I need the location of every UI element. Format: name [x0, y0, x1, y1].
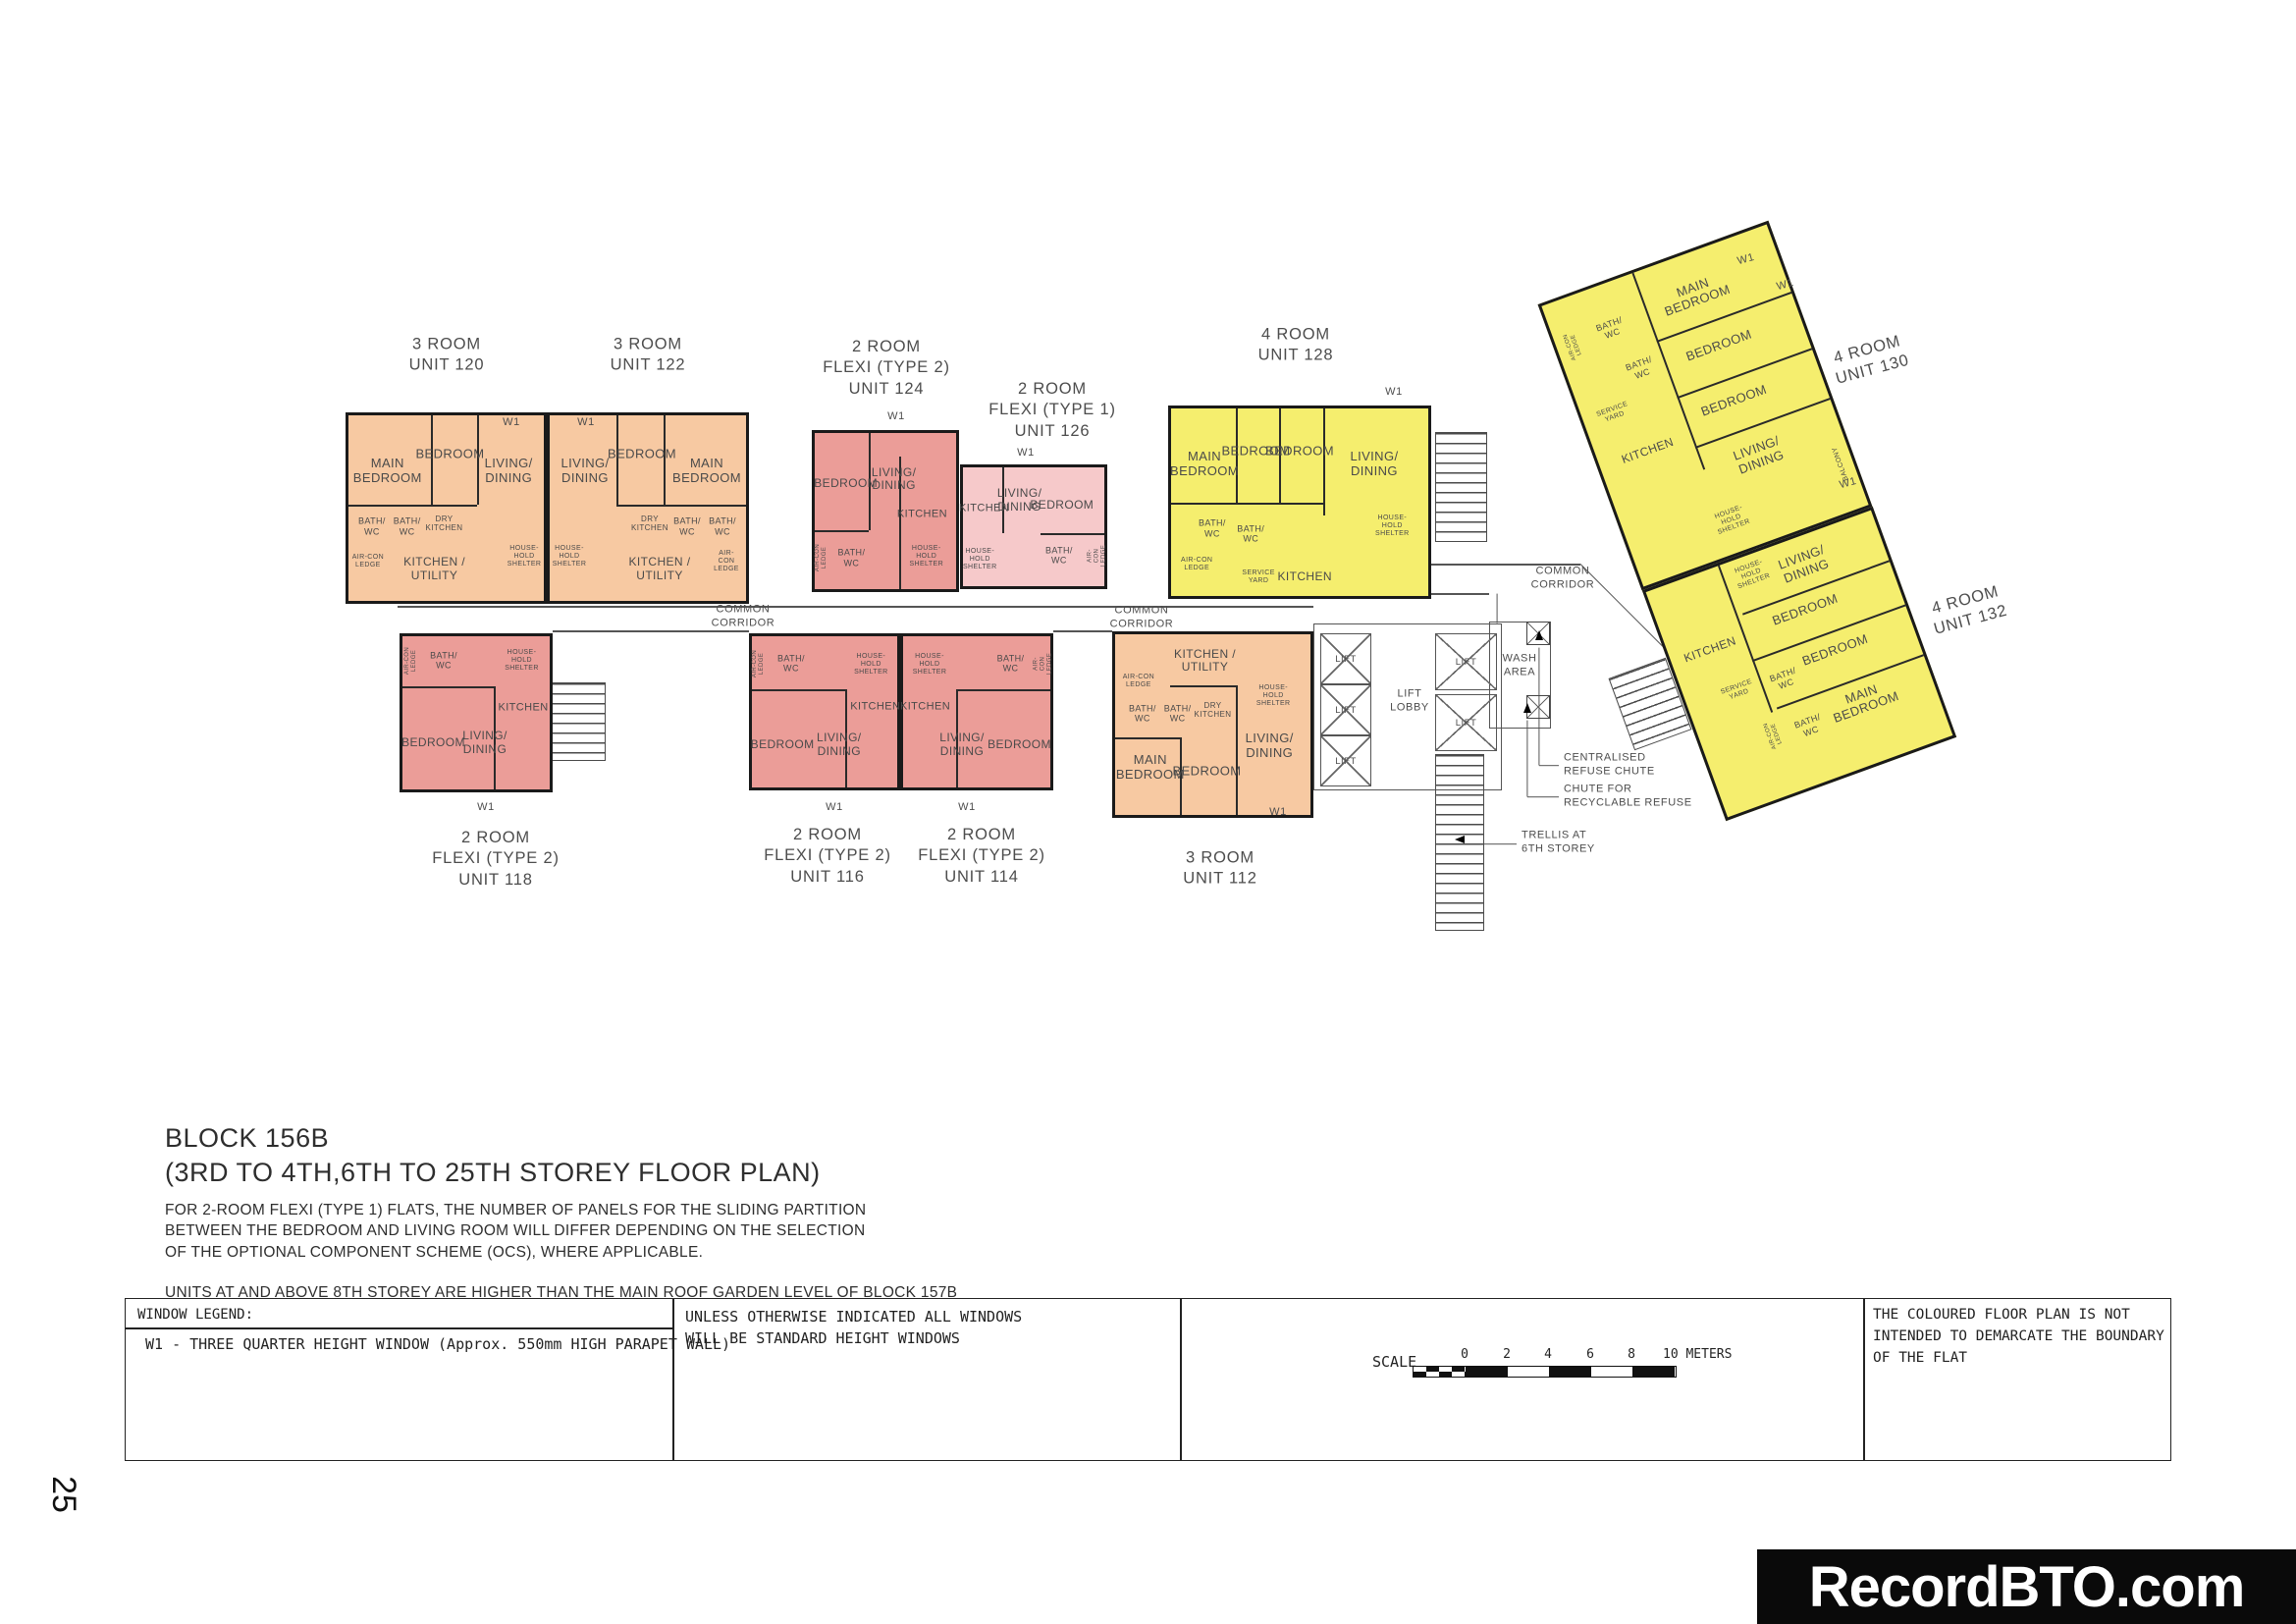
room-label: KITCHEN / UTILITY [629, 556, 691, 583]
lift-shaft: LIFT [1320, 633, 1371, 684]
room-label: AIR-CON LEDGE [1763, 719, 1786, 749]
room-label: BATH/ WC [1237, 524, 1264, 545]
unit-120-block: MAIN BEDROOMBEDROOMLIVING/ DININGBATH/ W… [346, 412, 547, 604]
room-label: HOUSE- HOLD SHELTER [913, 653, 947, 677]
unit-116-block: AIR-CON LEDGEBATH/ WCHOUSE- HOLD SHELTER… [749, 633, 900, 790]
room-label: BEDROOM [814, 478, 878, 492]
legend-table-divider [672, 1298, 674, 1461]
room-label: KITCHEN [850, 701, 900, 714]
scale-tick: 10 METERS [1663, 1347, 1732, 1362]
lift-lobby-label: LIFT LOBBY [1390, 687, 1429, 715]
room-label: BATH/ WC [997, 653, 1025, 674]
scale-tick: 2 [1503, 1347, 1511, 1362]
trellis-label: TRELLIS AT 6TH STOREY [1522, 829, 1595, 856]
unit-128-block: MAIN BEDROOMBEDROOMBEDROOMLIVING/ DINING… [1168, 406, 1431, 599]
wash-area-label: WASH AREA [1503, 652, 1537, 679]
unit-126-title: 2 ROOM FLEXI (TYPE 1) UNIT 126 [988, 379, 1115, 442]
room-label: AIR-CON LEDGE [1181, 556, 1212, 571]
room-label: LIVING/ DINING [939, 731, 984, 759]
unit-114-title: 2 ROOM FLEXI (TYPE 2) UNIT 114 [918, 825, 1044, 888]
scale-tick: 6 [1586, 1347, 1594, 1362]
room-label: LIVING/ DINING [462, 730, 507, 757]
w1-label: W1 [1017, 447, 1035, 460]
room-label: HOUSE- HOLD SHELTER [1256, 683, 1291, 707]
room-label: BATH/ WC [1045, 545, 1073, 566]
internal-wall [402, 686, 494, 688]
leader-arrow-left [1455, 836, 1465, 843]
room-label: KITCHEN [897, 508, 947, 520]
room-label: KITCHEN [1620, 436, 1676, 467]
room-label: AIR-CON LEDGE [1033, 653, 1053, 675]
internal-wall [1170, 685, 1237, 687]
unit-118-block: AIR-CON LEDGEBATH/ WCHOUSE- HOLD SHELTER… [400, 633, 553, 792]
scale-bar-checker [1414, 1367, 1466, 1377]
legend-table-divider [1863, 1298, 1865, 1461]
w1-label: W1 [477, 801, 495, 815]
unit-118-title: 2 ROOM FLEXI (TYPE 2) UNIT 118 [432, 828, 559, 891]
unit-120-title: 3 ROOM UNIT 120 [409, 335, 485, 377]
room-label: SERVICE YARD [1242, 569, 1274, 585]
unit-112-title: 3 ROOM UNIT 112 [1183, 848, 1257, 891]
room-label: KITCHEN / UTILITY [403, 556, 465, 583]
room-label: LIVING/ DINING [561, 457, 609, 486]
room-label: AIR-CON LEDGE [352, 554, 384, 569]
lift-label: LIFT [1335, 654, 1357, 665]
room-label: BEDROOM [751, 738, 815, 752]
room-label: HOUSE- HOLD SHELTER [909, 545, 943, 568]
room-label: BATH/ WC [777, 653, 805, 674]
lift-label: LIFT [1456, 718, 1477, 729]
room-label: HOUSE- HOLD SHELTER [505, 649, 539, 673]
internal-wall [616, 505, 746, 507]
internal-wall [1041, 533, 1104, 535]
room-label: BEDROOM [1265, 444, 1334, 459]
centralised-refuse-chute-label: CENTRALISED REFUSE CHUTE [1564, 751, 1655, 779]
unit-132-title: 4 ROOM UNIT 132 [1926, 580, 2009, 640]
room-label: KITCHEN / UTILITY [1174, 648, 1236, 676]
room-label: MAIN BEDROOM [1658, 269, 1733, 320]
room-label: LIVING/ DINING [817, 731, 861, 759]
scale-bar [1413, 1366, 1677, 1378]
room-label: BEDROOM [1030, 499, 1094, 513]
common-corridor-label: COMMON CORRIDOR [1531, 565, 1595, 592]
room-label: DRY KITCHEN [631, 514, 668, 531]
room-label: MAIN BEDROOM [353, 457, 422, 486]
storey-subtitle: (3RD TO 4TH,6TH TO 25TH STOREY FLOOR PLA… [165, 1158, 957, 1188]
room-label: AIR-CON LEDGE [714, 550, 739, 573]
lift-label: LIFT [1335, 705, 1357, 716]
room-label: AIR-CON LEDGE [404, 647, 418, 675]
corridor-line [1527, 796, 1559, 797]
room-label: BEDROOM [1173, 764, 1242, 779]
corridor-line [1539, 765, 1559, 766]
w1-label: W1 [1269, 806, 1287, 820]
internal-wall [752, 689, 845, 691]
corridor-line [1526, 721, 1527, 797]
lift-shaft: LIFT [1435, 694, 1497, 751]
recyclable-refuse-chute-label: CHUTE FOR RECYCLABLE REFUSE [1564, 783, 1692, 810]
room-label: HOUSE- HOLD SHELTER [553, 545, 587, 568]
room-label: BATH/ WC [1199, 518, 1226, 539]
room-label: HOUSE- HOLD SHELTER [854, 653, 888, 677]
w1-label: W1 [958, 801, 976, 815]
room-label: HOUSE- HOLD SHELTER [963, 548, 997, 571]
block-title: BLOCK 156B [165, 1123, 957, 1154]
room-label: DRY KITCHEN [1195, 701, 1232, 719]
w1-legend-entry: W1 - THREE QUARTER HEIGHT WINDOW (Approx… [145, 1335, 730, 1353]
room-label: BEDROOM [1699, 383, 1769, 420]
staircase [1435, 432, 1487, 542]
unit-122-title: 3 ROOM UNIT 122 [611, 335, 686, 377]
legend-table-divider [125, 1327, 672, 1329]
leader-arrow-up [1535, 630, 1543, 640]
room-label: DRY KITCHEN [426, 514, 463, 531]
watermark-text: RecordBTO.com [1809, 1554, 2245, 1620]
room-label: SERVICE YARD [1720, 678, 1756, 705]
room-label: LIVING/ DINING [485, 457, 533, 486]
staircase [552, 682, 606, 761]
room-label: BEDROOM [1684, 328, 1754, 365]
room-label: AIR-CON LEDGE [1563, 330, 1585, 360]
scale-tick: 4 [1544, 1347, 1552, 1362]
room-label: AIR-CON LEDGE [1123, 674, 1154, 689]
window-legend-title: WINDOW LEGEND: [137, 1307, 253, 1323]
room-label: KITCHEN [498, 702, 548, 715]
room-label: HOUSE- HOLD SHELTER [1711, 503, 1751, 537]
room-label: HOUSE- HOLD SHELTER [1375, 514, 1410, 538]
room-label: BATH/ WC [1768, 665, 1800, 693]
corridor-line [1496, 594, 1497, 623]
room-label: BEDROOM [988, 738, 1051, 752]
room-label: BATH/ WC [1594, 314, 1627, 343]
room-label: MAIN BEDROOM [1827, 676, 1901, 727]
room-label: BATH/ WC [673, 516, 701, 537]
lift-shaft: LIFT [1320, 684, 1371, 735]
unit-124-title: 2 ROOM FLEXI (TYPE 2) UNIT 124 [823, 337, 949, 400]
unit-126-block: KITCHENLIVING/ DININGBEDROOMHOUSE- HOLD … [960, 464, 1107, 589]
unit-128-title: 4 ROOM UNIT 128 [1258, 325, 1334, 367]
room-label: BATH/ WC [430, 651, 457, 672]
internal-wall [1236, 685, 1238, 815]
room-label: BEDROOM [608, 447, 676, 461]
common-corridor-label: COMMON CORRIDOR [712, 603, 775, 630]
room-label: BATH/ WC [394, 516, 421, 537]
room-label: KITCHEN [1682, 634, 1738, 666]
unit-112-block: KITCHEN / UTILITYAIR-CON LEDGEBATH/ WCBA… [1112, 631, 1313, 818]
scale-tick: 0 [1461, 1347, 1468, 1362]
room-label: AIR-CON LEDGE [815, 544, 828, 571]
unit-114-block: HOUSE- HOLD SHELTERBATH/ WCAIR-CON LEDGE… [900, 633, 1053, 790]
unit-122-block: LIVING/ DININGBEDROOMMAIN BEDROOMDRY KIT… [547, 412, 749, 604]
legend-table-divider [1180, 1298, 1182, 1461]
lift-shaft: LIFT [1320, 735, 1371, 786]
room-label: SERVICE YARD [1595, 401, 1631, 427]
room-label: BATH/ WC [1129, 704, 1156, 725]
unit-116-title: 2 ROOM FLEXI (TYPE 2) UNIT 116 [764, 825, 890, 888]
windows-note: UNLESS OTHERWISE INDICATED ALL WINDOWS W… [685, 1307, 1022, 1350]
internal-wall [1171, 503, 1323, 505]
room-label: HOUSE- HOLD SHELTER [1732, 557, 1772, 591]
corridor-line [553, 630, 749, 631]
room-label: BATH/ WC [838, 548, 866, 568]
room-label: BEDROOM [1771, 592, 1841, 629]
internal-wall [348, 505, 477, 507]
internal-wall [1115, 737, 1180, 739]
w1-label: W1 [826, 801, 843, 815]
w1-label: W1 [887, 410, 905, 424]
scale-tick: 8 [1628, 1347, 1635, 1362]
leader-arrow-up [1523, 703, 1531, 713]
room-label: AIR-CON LEDGE [753, 650, 767, 677]
w1-label: W1 [1385, 386, 1403, 400]
room-label: LIVING/ DINING [872, 466, 916, 494]
w1-label: W1 [503, 416, 520, 430]
room-label: BEDROOM [1800, 632, 1870, 670]
room-label: BATH/ WC [1793, 712, 1826, 740]
unit-124-block: BEDROOMLIVING/ DININGKITCHENAIR-CON LEDG… [812, 430, 959, 592]
lift-label: LIFT [1456, 657, 1477, 668]
lift-label: LIFT [1335, 756, 1357, 767]
watermark-banner: RecordBTO.com [1757, 1549, 2296, 1624]
room-label: BATH/ WC [358, 516, 386, 537]
room-label: KITCHEN [900, 701, 950, 714]
corridor-line [1053, 630, 1112, 631]
room-label: LIVING/ DINING [1777, 543, 1832, 587]
room-label: BEDROOM [415, 447, 484, 461]
corridor-line [398, 606, 1313, 607]
common-corridor-label: COMMON CORRIDOR [1110, 604, 1174, 631]
room-label: KITCHEN [1277, 570, 1331, 584]
flexi-note: FOR 2-ROOM FLEXI (TYPE 1) FLATS, THE NUM… [165, 1200, 957, 1263]
lift-shaft: LIFT [1435, 633, 1497, 690]
coloured-plan-note: THE COLOURED FLOOR PLAN IS NOT INTENDED … [1873, 1305, 2164, 1369]
w1-label: W1 [577, 416, 595, 430]
room-label: HOUSE- HOLD SHELTER [507, 545, 542, 568]
title-block: BLOCK 156B (3RD TO 4TH,6TH TO 25TH STORE… [165, 1123, 957, 1302]
room-label: BATH/ WC [1625, 354, 1657, 383]
room-label: BATH/ WC [709, 516, 736, 537]
internal-wall [956, 689, 1050, 691]
scale-label: SCALE [1372, 1353, 1416, 1371]
room-label: LIVING/ DINING [1732, 434, 1787, 478]
room-label: AIR-CON LEDGE [1087, 544, 1107, 566]
room-label: MAIN BEDROOM [672, 457, 741, 486]
room-label: BATH/ WC [1164, 704, 1192, 725]
internal-wall [815, 530, 869, 532]
room-label: LIVING/ DINING [1350, 450, 1398, 479]
internal-wall [1323, 408, 1325, 515]
room-label: BEDROOM [401, 736, 465, 750]
unit-130-title: 4 ROOM UNIT 130 [1828, 330, 1911, 390]
room-label: LIVING/ DINING [1246, 731, 1294, 761]
page-number: 25 [34, 1460, 93, 1529]
